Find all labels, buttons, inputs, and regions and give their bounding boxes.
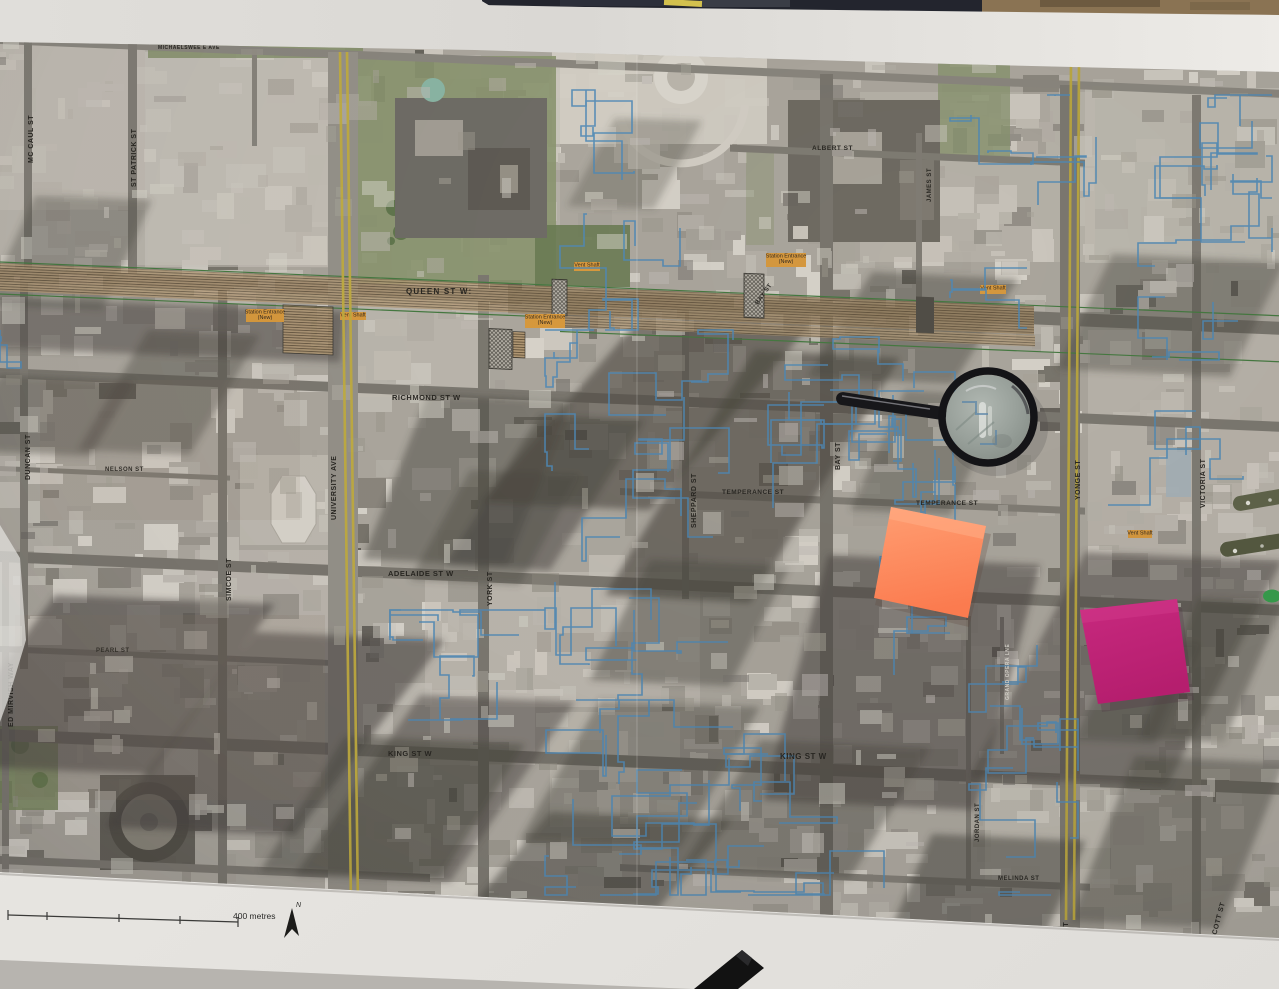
- svg-text:400 metres: 400 metres: [233, 911, 276, 921]
